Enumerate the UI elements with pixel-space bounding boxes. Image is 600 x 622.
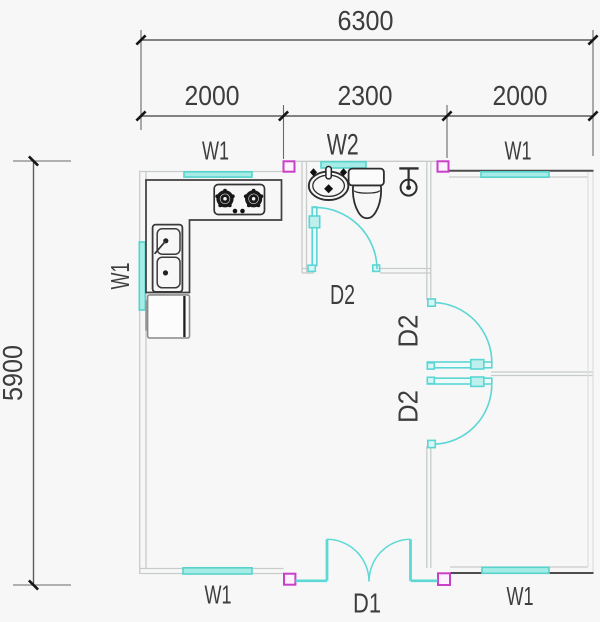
svg-text:D2: D2 xyxy=(393,315,424,348)
svg-text:W1: W1 xyxy=(507,581,534,611)
svg-text:2000: 2000 xyxy=(185,80,240,111)
svg-text:6300: 6300 xyxy=(338,5,394,36)
svg-text:5900: 5900 xyxy=(0,345,28,401)
svg-text:W1: W1 xyxy=(202,136,229,166)
svg-text:D2: D2 xyxy=(393,390,424,423)
svg-text:D2: D2 xyxy=(330,279,355,310)
svg-text:2300: 2300 xyxy=(338,80,393,111)
svg-text:2000: 2000 xyxy=(493,80,548,111)
svg-text:W1: W1 xyxy=(505,136,532,166)
svg-text:W2: W2 xyxy=(327,129,359,162)
svg-text:D1: D1 xyxy=(353,588,381,619)
svg-text:W1: W1 xyxy=(105,263,135,290)
svg-text:W1: W1 xyxy=(205,580,232,610)
